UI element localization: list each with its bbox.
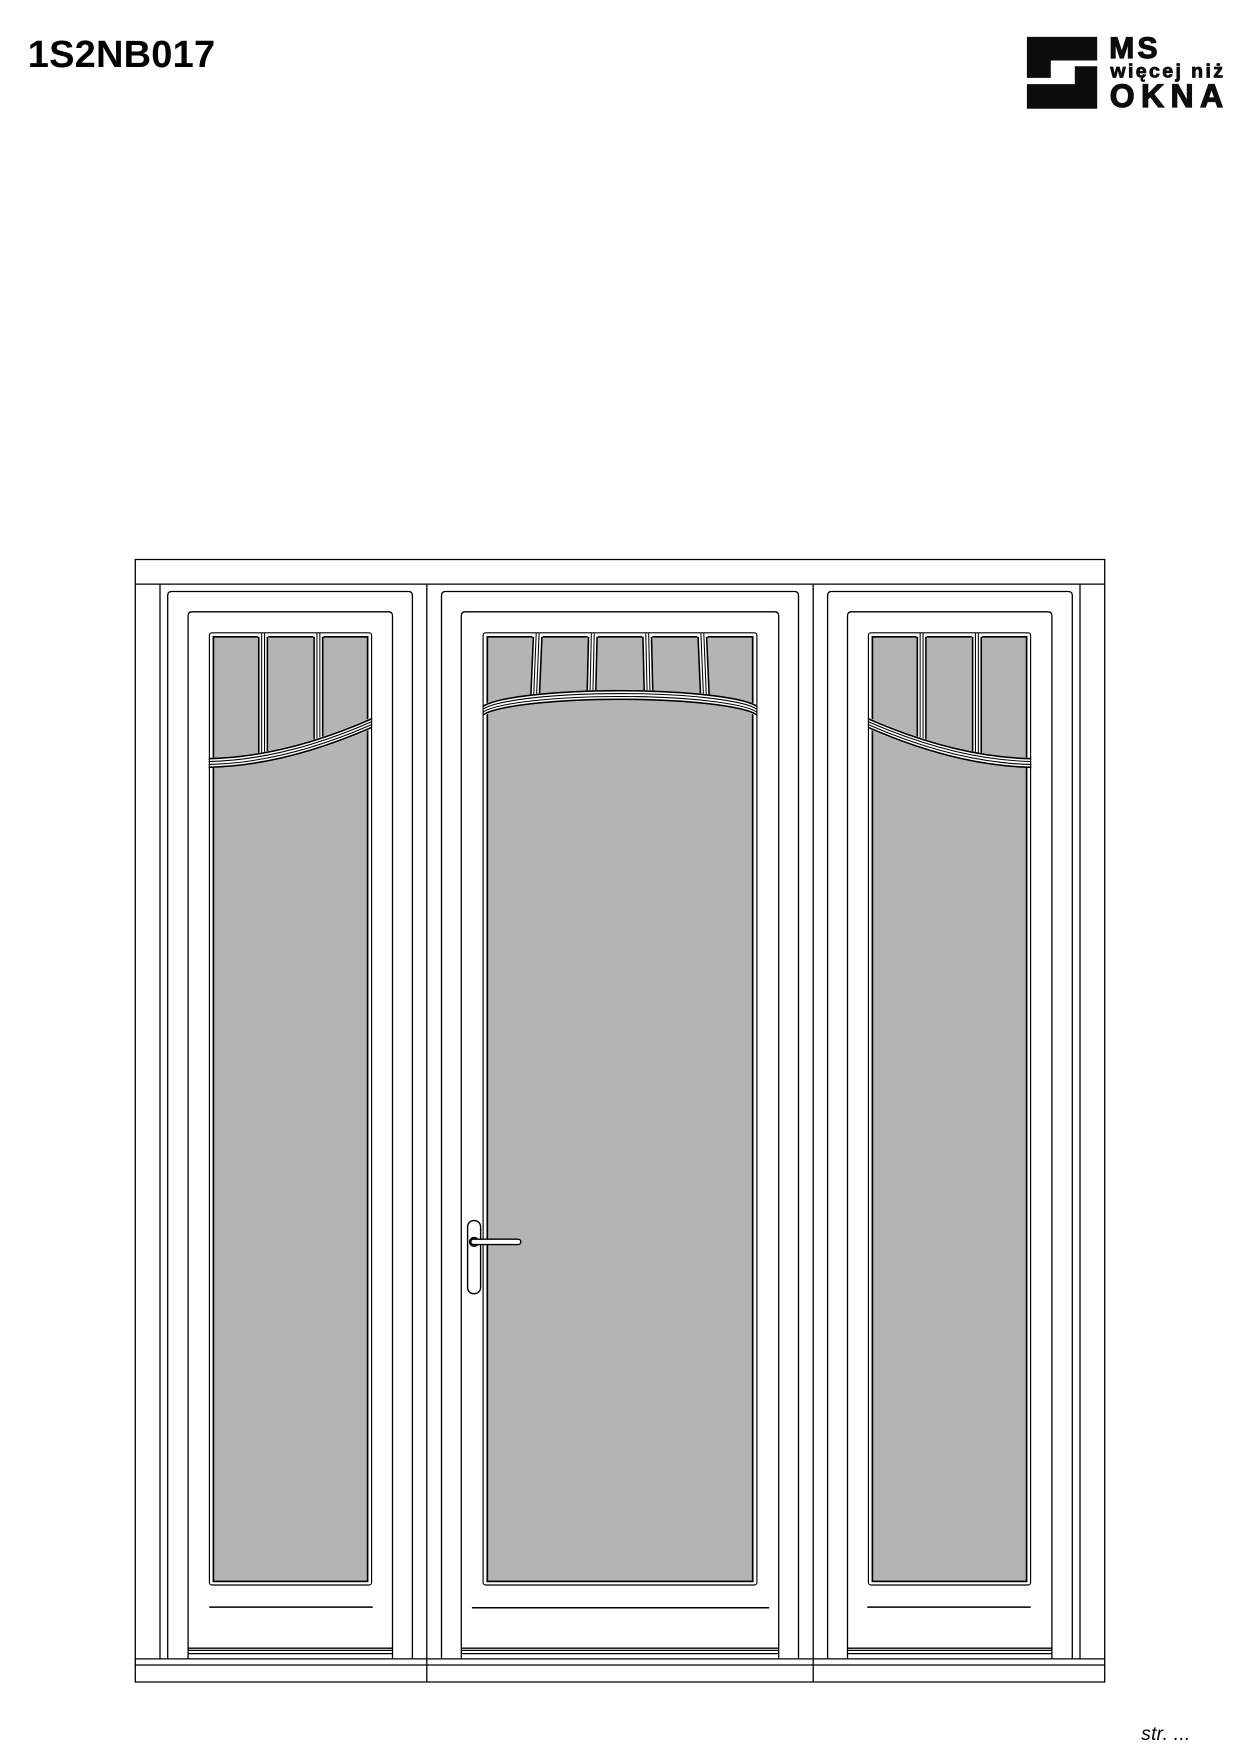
svg-text:OKNA: OKNA [1110,78,1230,114]
svg-text:1S2NB017: 1S2NB017 [28,34,216,76]
svg-text:str. ...: str. ... [1141,1724,1190,1745]
